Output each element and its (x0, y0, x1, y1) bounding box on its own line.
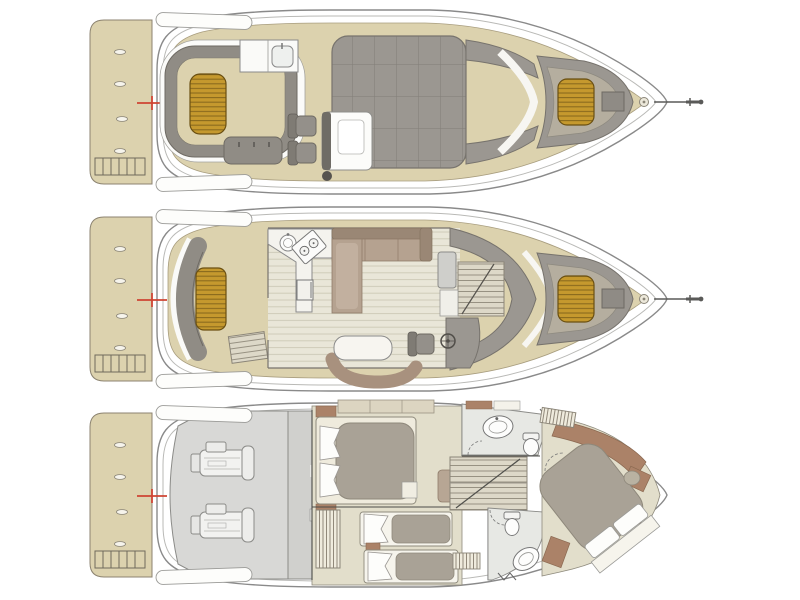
helm-console-pod (446, 318, 480, 368)
helm-seat (408, 332, 434, 356)
steering-wheel (322, 171, 332, 181)
closet (338, 400, 434, 413)
vip-pouf (624, 471, 640, 485)
central-stairs (450, 457, 527, 510)
yacht-deck-plans-drawing (0, 0, 800, 600)
wardrobe-hangers (316, 510, 340, 568)
teak-table (190, 74, 226, 134)
toilet (504, 512, 520, 536)
teak-table (196, 268, 226, 330)
yacht-floorplan-page (0, 0, 800, 600)
cockpit-steps (228, 332, 267, 364)
engine-room (170, 411, 288, 579)
tv-cabinet (438, 252, 456, 288)
deck-lower (90, 400, 667, 587)
dinette-table (334, 336, 392, 360)
wardrobe-hangers (453, 553, 480, 569)
wet-bar (240, 40, 298, 72)
toilet (523, 433, 539, 456)
tank-bulkhead (288, 411, 312, 579)
deck-flybridge (90, 10, 703, 194)
steering-wheel (441, 334, 455, 348)
bench-seat (224, 137, 282, 164)
vip-cabin (530, 407, 661, 576)
bar-sink (272, 46, 293, 67)
deck-main (90, 207, 703, 391)
